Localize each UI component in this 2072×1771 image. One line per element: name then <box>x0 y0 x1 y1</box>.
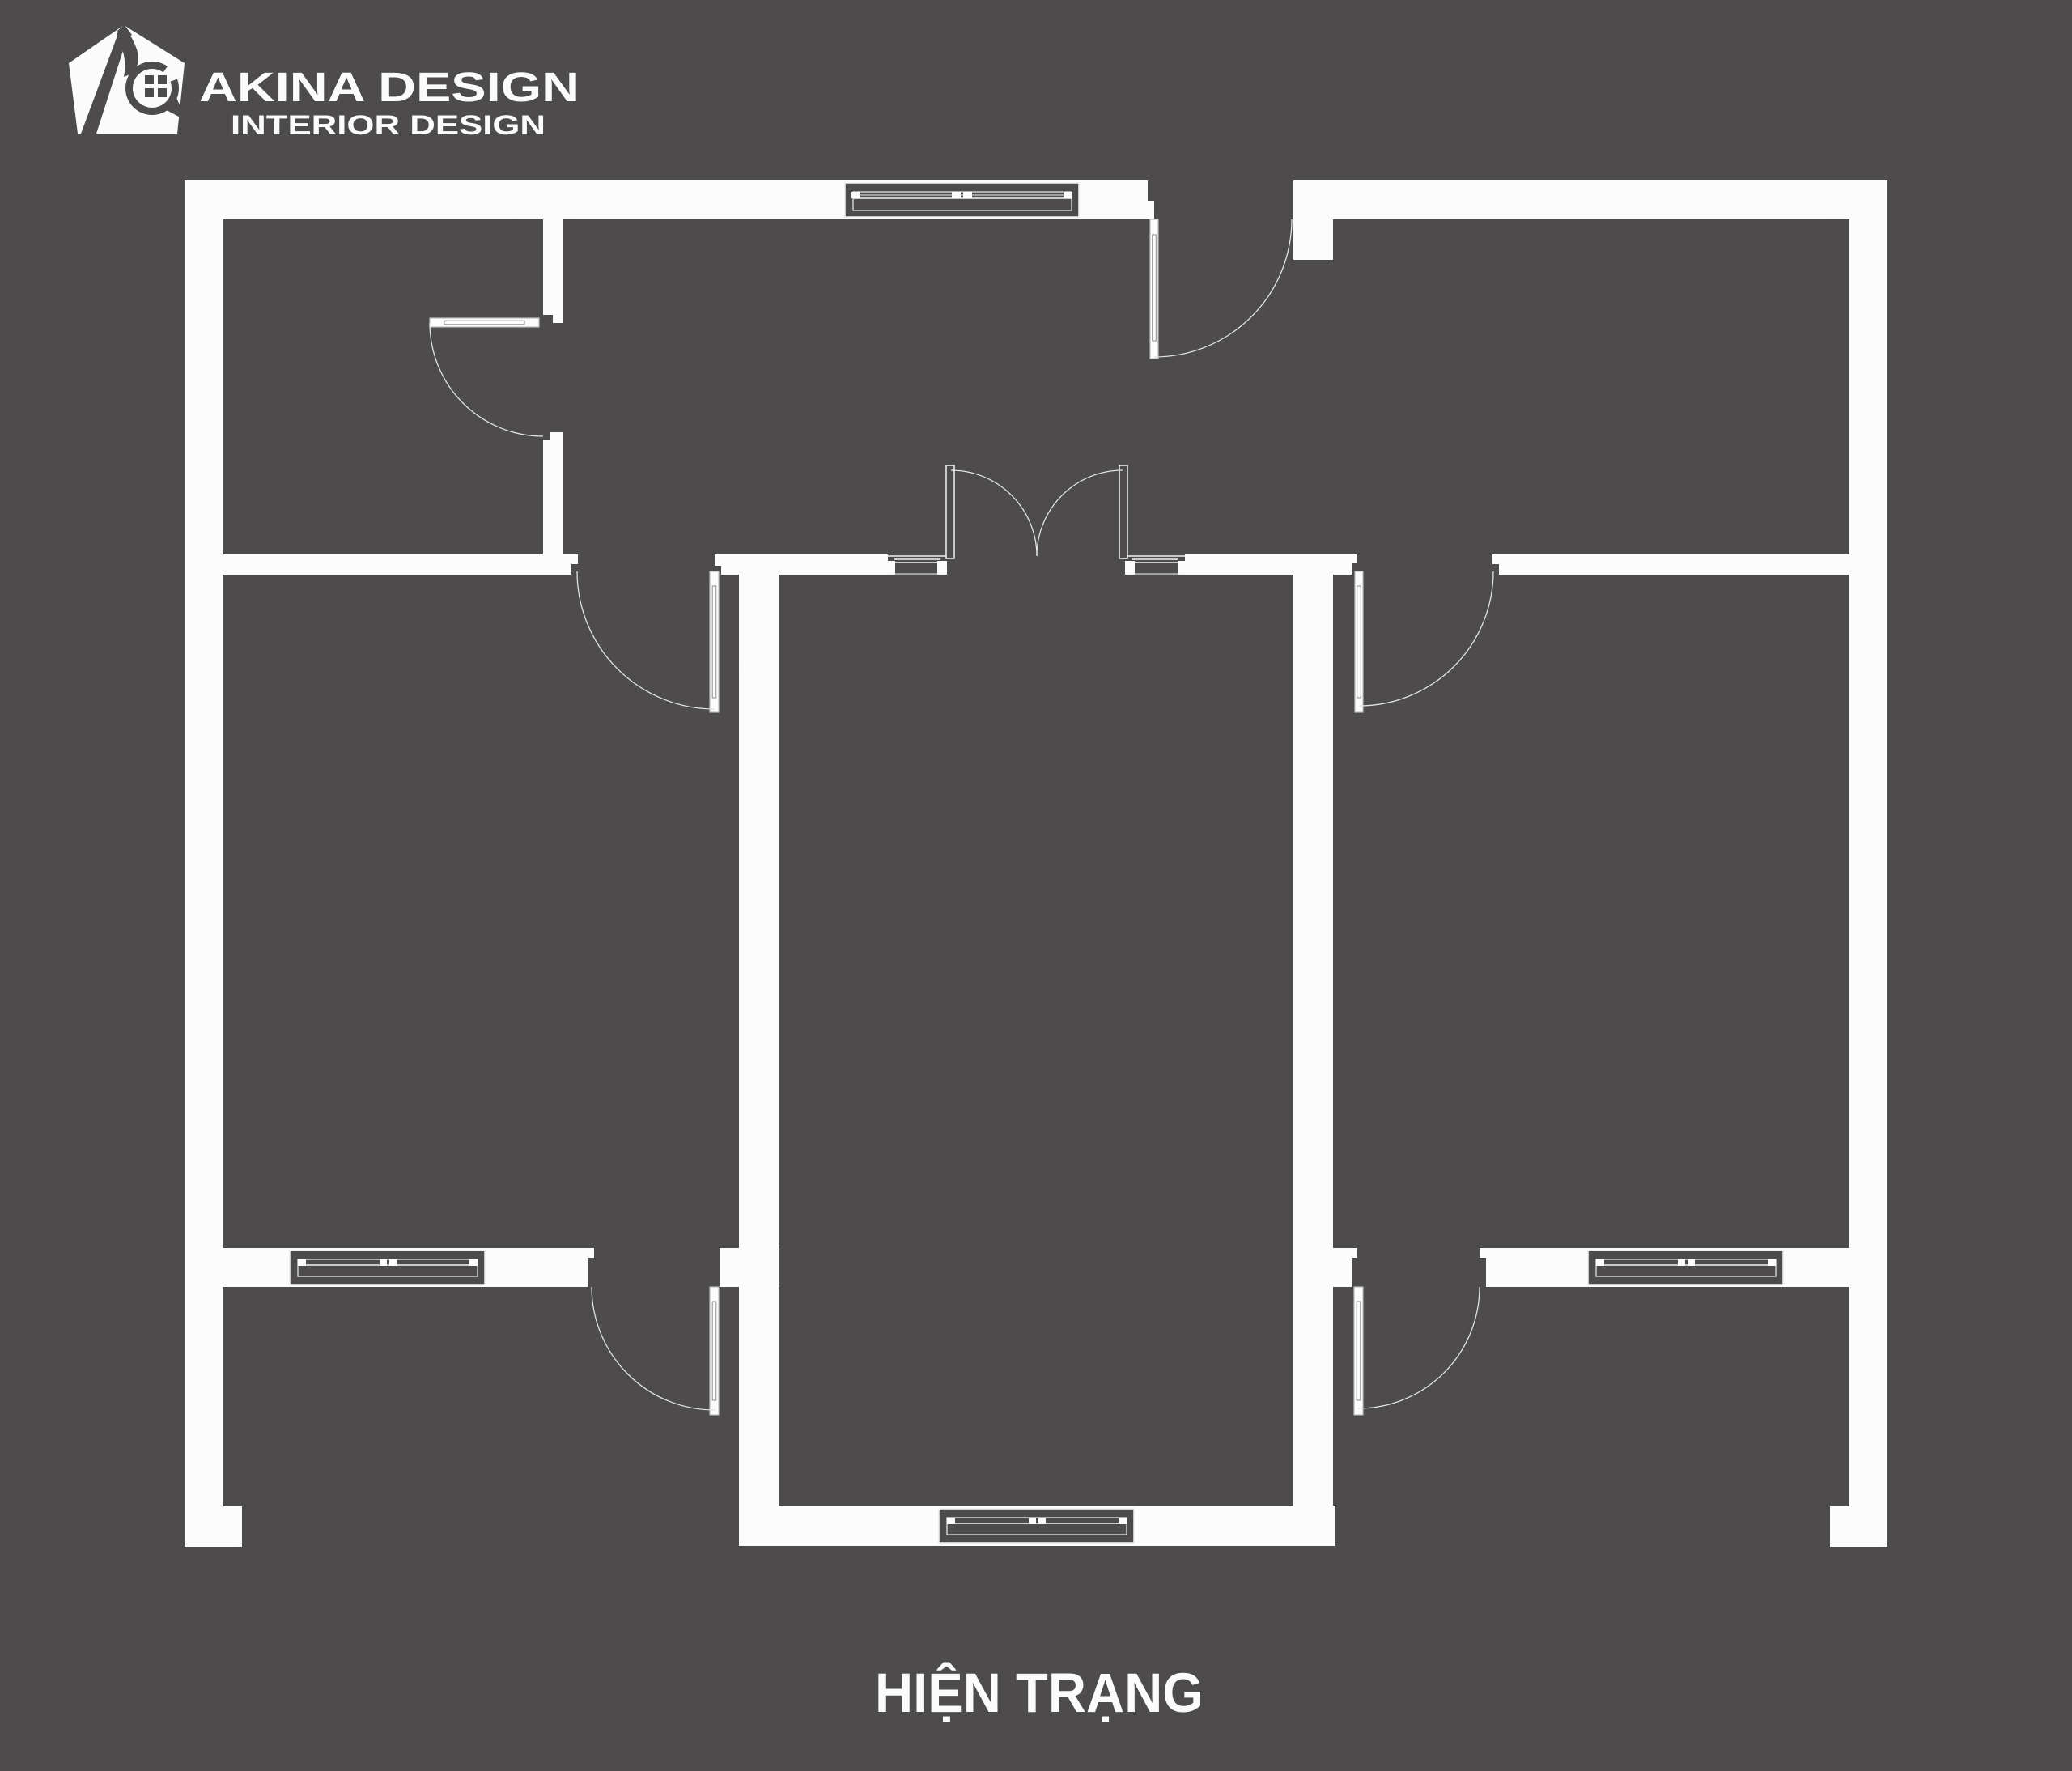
svg-text:INTERIOR DESIGN: INTERIOR DESIGN <box>231 110 546 141</box>
svg-text:AKINA DESIGN: AKINA DESIGN <box>199 64 580 110</box>
svg-text:HIỆN TRẠNG: HIỆN TRẠNG <box>875 1662 1204 1724</box>
